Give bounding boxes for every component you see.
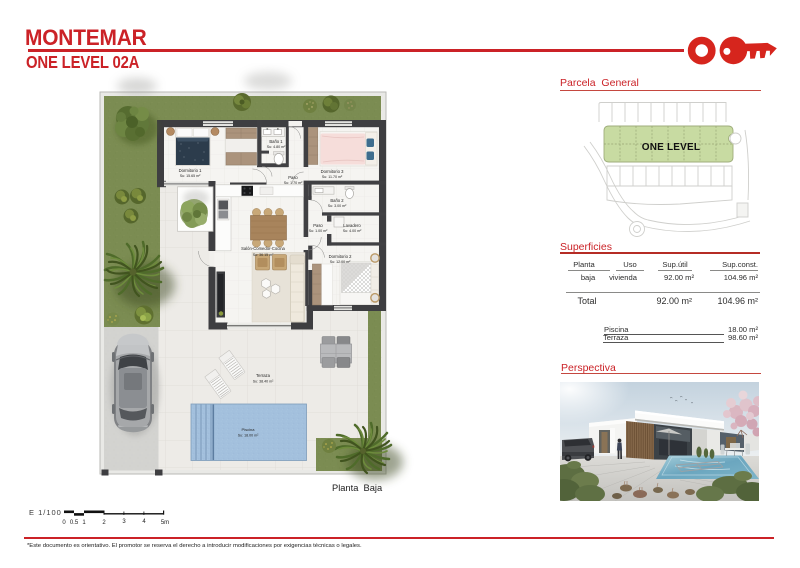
svg-text:Su: 15.65 m²: Su: 15.65 m² (180, 174, 201, 178)
svg-text:ONE LEVEL: ONE LEVEL (642, 142, 700, 153)
svg-text:Su: 1.70 m²: Su: 1.70 m² (284, 181, 303, 185)
svg-text:Su: 4.80 m²: Su: 4.80 m² (267, 145, 286, 149)
svg-text:0: 0 (62, 520, 66, 526)
svg-text:Dormitorio 3: Dormitorio 3 (321, 169, 344, 174)
svg-text:Su: 18.00 m²: Su: 18.00 m² (238, 434, 259, 438)
svg-text:1: 1 (82, 520, 86, 526)
svg-text:4: 4 (142, 519, 146, 525)
svg-text:Paso: Paso (288, 175, 298, 180)
svg-text:Terraza: Terraza (256, 373, 271, 378)
svg-text:Dormitorio 1: Dormitorio 1 (179, 168, 202, 173)
svg-text:Su: 4.00 m²: Su: 4.00 m² (343, 229, 362, 233)
svg-text:Piscina: Piscina (242, 427, 256, 432)
svg-text:Dormitorio 2: Dormitorio 2 (329, 254, 352, 259)
svg-text:0.5: 0.5 (70, 520, 79, 526)
svg-text:2: 2 (102, 520, 106, 526)
svg-text:5m: 5m (161, 520, 169, 526)
svg-text:Su: 38.40 m²: Su: 38.40 m² (253, 380, 274, 384)
svg-text:Su: 11.70 m²: Su: 11.70 m² (322, 175, 343, 179)
svg-text:Lavadero: Lavadero (343, 223, 361, 228)
svg-text:Su: 36.15 m²: Su: 36.15 m² (253, 253, 274, 257)
svg-text:Baño 2: Baño 2 (330, 198, 344, 203)
svg-text:3: 3 (122, 519, 126, 525)
svg-text:Su: 1.00 m²: Su: 1.00 m² (309, 229, 328, 233)
svg-text:Baño 1: Baño 1 (269, 139, 283, 144)
svg-text:Salón-Comedor-Cocina: Salón-Comedor-Cocina (241, 246, 285, 251)
svg-text:Paso: Paso (313, 223, 323, 228)
svg-text:Su: 3.00 m²: Su: 3.00 m² (328, 204, 347, 208)
svg-text:Su: 12.00 m²: Su: 12.00 m² (330, 260, 351, 264)
